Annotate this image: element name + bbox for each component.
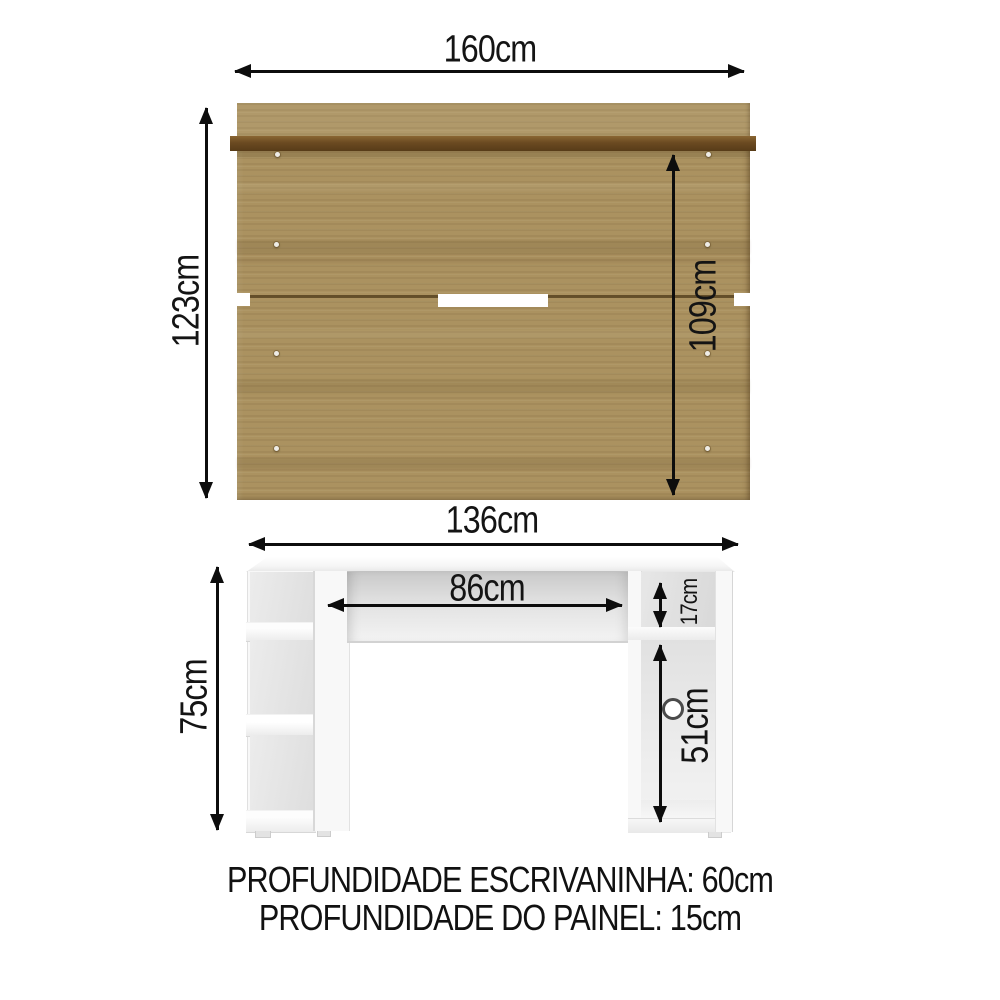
panel-shelf-edge: [230, 136, 756, 151]
panel-cable-slot: [438, 294, 548, 307]
screw-dot: [705, 446, 710, 451]
desk-foot: [317, 831, 331, 837]
depth-note-desk: PROFUNDIDADE ESCRIVANINHA: 60cm: [75, 859, 925, 901]
panel-height-label: 123cm: [166, 255, 209, 348]
screw-dot: [274, 351, 279, 356]
left-compartment-middle: [250, 640, 313, 714]
desk-foot: [255, 831, 271, 838]
product-dimension-diagram: 160cm 123cm 109cm 136cm 75cm: [0, 0, 1000, 1000]
panel-width-label: 160cm: [444, 29, 537, 72]
screw-dot: [274, 446, 279, 451]
panel-inner-height-label: 109cm: [683, 260, 726, 353]
desk-width-arrow: [249, 543, 738, 546]
panel-notch-left: [237, 293, 250, 306]
desk-right-inner-panel: [628, 571, 642, 831]
left-shelf-upper: [246, 622, 316, 642]
panel-shelf-top: [237, 103, 750, 136]
opening-height-arrow: [659, 645, 662, 822]
left-compartment-top: [250, 572, 313, 622]
screw-dot: [705, 242, 710, 247]
screw-dot: [275, 152, 280, 157]
panel-width-arrow: [235, 70, 744, 73]
desk-height-arrow: [216, 567, 219, 830]
left-shelf-lower: [246, 714, 316, 737]
desk-right-outer-panel: [715, 571, 733, 832]
left-compartment-bottom: [250, 735, 313, 810]
desk-inner-width-arrow: [328, 604, 622, 607]
screw-dot: [706, 152, 711, 157]
opening-height-label: 51cm: [675, 688, 718, 764]
panel-height-arrow: [205, 108, 208, 498]
shelf-height-arrow: [659, 583, 662, 627]
panel-inner-height-arrow: [672, 155, 675, 495]
desk-width-label: 136cm: [446, 500, 539, 543]
panel-notch-right: [734, 293, 750, 306]
shelf-height-label: 17cm: [676, 579, 704, 625]
desk-height-label: 75cm: [174, 659, 217, 735]
screw-dot: [274, 242, 279, 247]
left-bottom-slab: [246, 810, 316, 833]
depth-note-panel: PROFUNDIDADE DO PAINEL: 15cm: [75, 897, 925, 939]
desk-foot: [708, 832, 722, 838]
